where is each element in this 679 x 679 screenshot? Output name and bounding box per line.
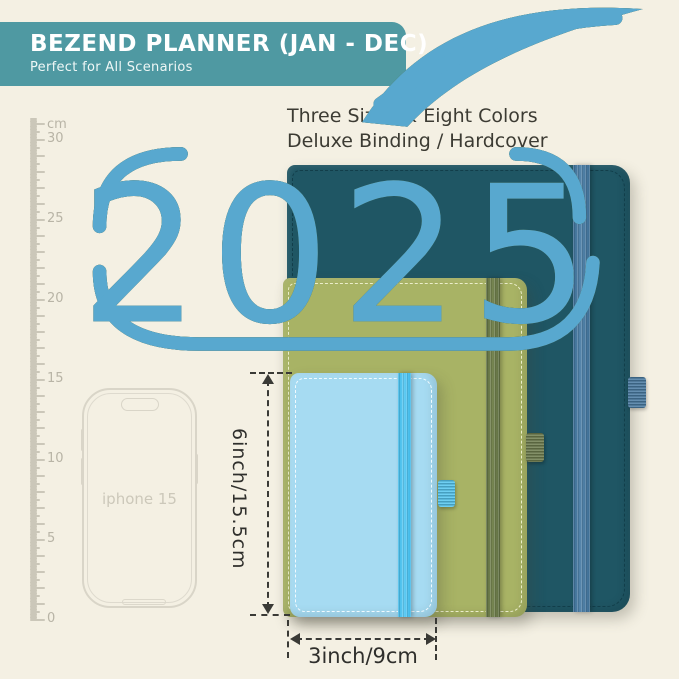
- ruler-tick: [30, 603, 45, 605]
- ruler-tick: [30, 504, 37, 506]
- ruler-label: 0: [47, 611, 55, 626]
- product-infographic: BEZEND PLANNER (JAN - DEC) Perfect for A…: [0, 0, 679, 679]
- ruler-tick: [30, 619, 45, 621]
- ruler-tick: [30, 440, 37, 442]
- ruler-tick: [30, 432, 37, 434]
- ruler-tick: [30, 515, 40, 517]
- ruler-tick: [30, 608, 37, 610]
- ruler-tick: [30, 403, 40, 405]
- ruler-tick: [30, 491, 45, 493]
- ruler-label: 5: [47, 531, 55, 546]
- ruler-tick: [30, 507, 45, 509]
- ruler-tick: [30, 544, 37, 546]
- ruler-tick: [30, 467, 40, 469]
- ruler-tick: [30, 411, 45, 413]
- ruler-tick: [30, 611, 40, 613]
- elastic-band: [398, 373, 411, 617]
- ruler-tick: [30, 424, 37, 426]
- ruler-tick: [30, 384, 37, 386]
- ruler-tick: [30, 456, 37, 458]
- ruler-tick: [30, 579, 40, 581]
- ruler-tick: [30, 459, 45, 461]
- ruler-tick: [30, 539, 45, 541]
- ruler-tick: [30, 408, 37, 410]
- iphone-volume-button: [81, 429, 84, 451]
- arrow-up-icon: [262, 374, 274, 384]
- ruler-tick: [30, 475, 45, 477]
- iphone-bottom-port: [122, 599, 166, 605]
- ruler-tick: [30, 435, 40, 437]
- pen-loop: [438, 480, 455, 507]
- ruler-tick: [30, 416, 37, 418]
- ruler-tick: [30, 523, 45, 525]
- iphone-power-button: [195, 454, 198, 484]
- ruler-tick: [30, 552, 37, 554]
- pen-loop: [628, 377, 646, 408]
- ruler-tick: [30, 395, 45, 397]
- ruler-tick: [30, 536, 37, 538]
- ruler-tick: [30, 387, 40, 389]
- planner-small-blue: [290, 373, 437, 617]
- ruler-tick: [30, 376, 37, 378]
- ruler-tick: [30, 400, 37, 402]
- svg-text:2025: 2025: [79, 145, 599, 362]
- ruler-label: 10: [47, 451, 64, 466]
- ruler-tick: [30, 368, 37, 370]
- ruler-tick: [30, 363, 45, 365]
- dim-width-left-tick: [287, 620, 289, 658]
- ruler-tick: [30, 531, 40, 533]
- ruler-tick: [30, 616, 37, 618]
- ruler-tick: [30, 472, 37, 474]
- ruler-tick: [30, 576, 37, 578]
- year-logo-small: 2025: [0, 0, 679, 362]
- width-dimension-label: 3inch/9cm: [293, 644, 433, 668]
- height-dimension-label: 6inch/15.5cm: [228, 428, 250, 570]
- ruler-tick: [30, 480, 37, 482]
- ruler-tick: [30, 483, 40, 485]
- ruler-tick: [30, 379, 45, 381]
- ruler-tick: [30, 547, 40, 549]
- ruler-tick: [30, 587, 45, 589]
- ruler-tick: [30, 595, 40, 597]
- ruler-tick: [30, 520, 37, 522]
- pen-loop: [526, 433, 544, 462]
- ruler-tick: [30, 528, 37, 530]
- ruler-tick: [30, 584, 37, 586]
- ruler-label: 15: [47, 371, 64, 386]
- ruler-tick: [30, 488, 37, 490]
- dim-height-bottom-tick: [250, 614, 290, 616]
- ruler-tick: [30, 592, 37, 594]
- dim-height-line: [267, 380, 269, 608]
- ruler-tick: [30, 600, 37, 602]
- dim-width-line: [296, 638, 430, 640]
- iphone-volume-button: [81, 458, 84, 485]
- ruler-tick: [30, 563, 40, 565]
- ruler-tick: [30, 571, 45, 573]
- ruler-tick: [30, 499, 40, 501]
- ruler-tick: [30, 555, 45, 557]
- ruler-tick: [30, 448, 37, 450]
- ruler-tick: [30, 371, 40, 373]
- arrow-down-icon: [262, 604, 274, 614]
- iphone-outline: iphone 15: [82, 388, 197, 608]
- ruler-tick: [30, 464, 37, 466]
- ruler-tick: [30, 512, 37, 514]
- ruler-tick: [30, 451, 40, 453]
- ruler-tick: [30, 392, 37, 394]
- ruler-tick: [30, 560, 37, 562]
- ruler-tick: [30, 443, 45, 445]
- ruler-tick: [30, 568, 37, 570]
- planner-cover: [290, 373, 437, 617]
- iphone-label: iphone 15: [84, 490, 195, 508]
- ruler-tick: [30, 496, 37, 498]
- iphone-dynamic-island: [121, 398, 159, 411]
- ruler-tick: [30, 427, 45, 429]
- ruler-tick: [30, 419, 40, 421]
